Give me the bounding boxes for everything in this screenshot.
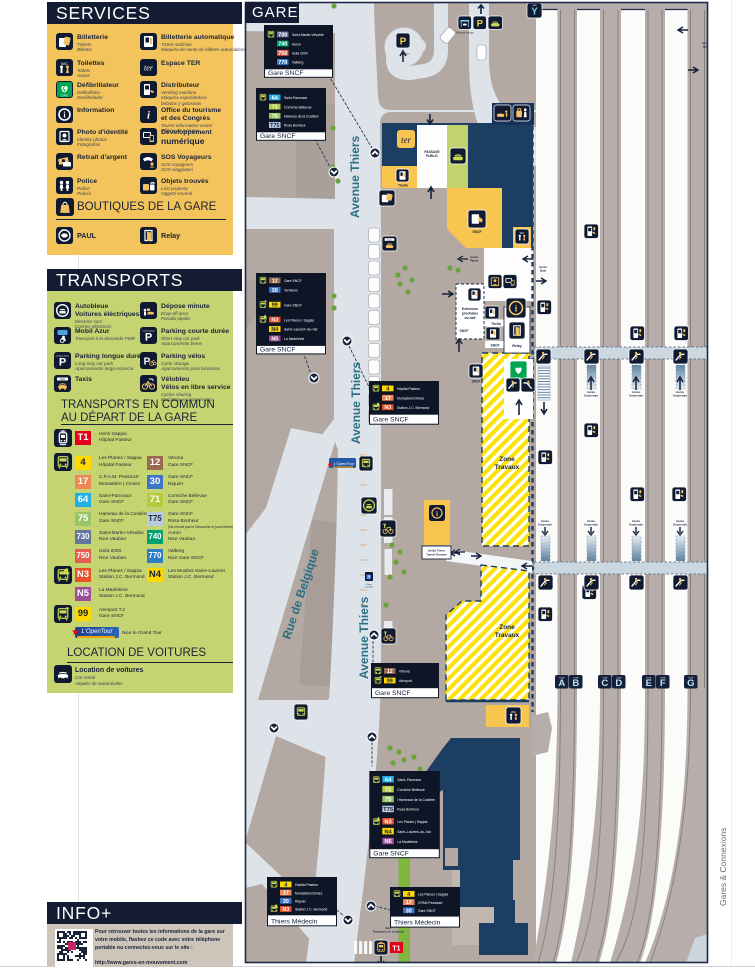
svg-text:La Madeleine: La Madeleine [397,840,417,844]
svg-text:Hôpital Pasteur: Hôpital Pasteur [295,883,319,887]
svg-text:4: 4 [407,892,410,898]
svg-text:Corniche Bellevue: Corniche Bellevue [397,788,425,792]
svg-text:Souterrain: Souterrain [673,394,687,398]
svg-text:Rosa Bonheur: Rosa Bonheur [397,808,420,812]
svg-text:Les Planes | Sappia: Les Planes | Sappia [418,893,448,897]
svg-text:T1: T1 [392,946,400,953]
svg-text:Saint–Laurent–du–Var: Saint–Laurent–du–Var [397,830,432,834]
svg-text:4: 4 [284,882,287,888]
svg-text:Riquier: Riquier [295,900,307,904]
svg-text:Thiers Médecin: Thiers Médecin [394,920,441,927]
svg-text:F: F [660,678,666,689]
svg-text:Thiers Médecin: Thiers Médecin [271,918,318,925]
svg-text:Gares & Connexions: Gares & Connexions [718,828,728,906]
svg-text:Monastère/Cimiez: Monastère/Cimiez [397,397,425,401]
svg-text:30: 30 [283,899,289,905]
svg-text:Gare SNCF: Gare SNCF [375,690,411,697]
svg-text:Station J.C. Bermond: Station J.C. Bermond [295,908,327,912]
svg-text:Quai: Quai [703,45,709,49]
svg-text:T75: T75 [270,123,279,129]
svg-text:Thello: Thello [398,184,408,188]
svg-text:Tunnel Durante: Tunnel Durante [426,553,447,557]
svg-text:N4: N4 [271,327,278,333]
svg-text:730: 730 [278,32,287,38]
svg-text:Gare SNCF: Gare SNCF [373,851,409,858]
svg-text:VOIE: VOIE [616,678,621,680]
svg-text:La Madeleine: La Madeleine [284,337,304,341]
svg-text:i: i [436,510,438,518]
svg-text:VOIE: VOIE [559,678,564,680]
svg-text:B: B [572,678,579,689]
svg-text:12: 12 [387,669,393,675]
svg-text:Souterrain: Souterrain [584,523,598,527]
svg-text:Souterrain: Souterrain [629,523,643,527]
svg-text:99: 99 [387,679,393,685]
svg-text:prochaine: prochaine [462,312,478,316]
svg-text:Souterrain: Souterrain [584,394,598,398]
svg-text:T75: T75 [383,807,394,813]
svg-text:Vitrona: Vitrona [399,670,410,674]
svg-text:Dépose minute: Dépose minute [456,31,474,35]
svg-text:30: 30 [406,908,412,914]
svg-text:64: 64 [272,95,278,101]
svg-text:Avenue Thiers: Avenue Thiers [349,361,363,444]
svg-text:Avenue Thiers: Avenue Thiers [348,135,362,218]
svg-text:Aéroport: Aéroport [399,679,412,683]
svg-text:Hameau de la Costière: Hameau de la Costière [284,115,319,119]
svg-text:Travaux: Travaux [495,464,520,471]
svg-text:Isola 2000: Isola 2000 [292,52,308,56]
svg-text:Hôpital Pasteur: Hôpital Pasteur [397,387,421,391]
svg-text:Souterrain: Souterrain [629,394,643,398]
svg-text:Avenue Thiers: Avenue Thiers [357,596,371,679]
svg-text:Saint-Pancrace: Saint-Pancrace [284,96,307,100]
svg-text:VOIE: VOIE [573,678,578,680]
svg-text:Zone: Zone [499,624,515,631]
svg-text:75: 75 [385,797,392,803]
svg-text:♿: ♿ [366,574,372,580]
svg-text:N3: N3 [384,405,391,411]
svg-text:Gare SNCF: Gare SNCF [260,133,296,140]
svg-text:Station J.C. Bermond: Station J.C. Bermond [397,406,429,410]
svg-text:Extension: Extension [462,307,478,311]
svg-text:L'OpenTour: L'OpenTour [334,461,355,466]
svg-text:Souterrain: Souterrain [538,523,552,527]
svg-text:Zone: Zone [499,456,515,463]
svg-text:du hall: du hall [465,316,476,320]
svg-text:VOIE: VOIE [660,678,665,680]
svg-text:4: 4 [386,386,389,392]
svg-text:N4: N4 [384,829,392,835]
svg-text:750: 750 [278,51,287,57]
svg-text:Relay: Relay [512,344,522,348]
svg-text:99: 99 [272,303,278,309]
svg-text:740: 740 [278,42,287,48]
svg-text:Saint–Laurent–du–Var: Saint–Laurent–du–Var [284,328,319,332]
svg-text:Terminus: Terminus [284,289,298,293]
svg-text:770: 770 [278,60,287,66]
svg-text:C: C [601,678,608,689]
svg-text:17: 17 [406,900,412,906]
svg-text:64: 64 [385,777,392,783]
svg-text:Gare SNCF: Gare SNCF [418,909,436,913]
svg-text:Parvis: Parvis [470,259,479,263]
svg-text:Gare SNCF: Gare SNCF [268,70,304,77]
svg-text:ter: ter [401,135,411,145]
svg-text:Les Planes | Sappia: Les Planes | Sappia [397,820,427,824]
svg-text:Gare SNCF: Gare SNCF [260,346,296,353]
svg-text:G: G [687,678,694,689]
svg-text:Souterrain: Souterrain [673,523,687,527]
svg-text:réservée: réservée [365,586,374,589]
svg-text:★: ★ [327,461,333,469]
svg-text:PUBLIC: PUBLIC [426,154,439,158]
svg-text:E: E [646,678,652,689]
svg-text:SNCF: SNCF [460,329,469,333]
svg-text:Saint-Martin-Vésubie: Saint-Martin-Vésubie [292,33,324,37]
svg-text:Corniche Bellevue: Corniche Bellevue [284,105,312,109]
svg-text:Gare SNCF: Gare SNCF [373,417,409,424]
svg-text:SNCF: SNCF [472,230,481,234]
svg-text:VOIE: VOIE [688,678,693,680]
svg-text:Rosa Bonheur: Rosa Bonheur [284,124,307,128]
svg-text:17: 17 [385,396,391,402]
svg-text:Transports en commun: Transports en commun [373,930,404,934]
svg-text:17: 17 [283,891,289,897]
svg-text:71: 71 [272,105,278,111]
svg-text:CPAM Pessicart: CPAM Pessicart [418,901,442,905]
svg-text:Thello: Thello [491,322,501,326]
svg-text:D: D [615,678,622,689]
svg-text:30: 30 [272,288,278,294]
svg-text:75: 75 [272,114,278,120]
svg-text:N3: N3 [282,907,289,913]
svg-text:Gare SNCF: Gare SNCF [284,303,302,307]
svg-text:N3: N3 [384,819,392,825]
svg-text:N5: N5 [384,839,392,845]
svg-text:Saint–Pancrace: Saint–Pancrace [397,778,421,782]
svg-text:Auron: Auron [292,42,301,46]
svg-text:A: A [558,678,565,689]
svg-text:12: 12 [272,278,278,284]
svg-text:Les Planes / Sappia: Les Planes / Sappia [284,318,314,322]
svg-text:VOIE: VOIE [646,678,651,680]
svg-text:Quai: Quai [540,269,546,273]
svg-text:SNCF: SNCF [491,343,500,347]
svg-text:N5: N5 [271,336,278,342]
svg-text:Monastère/Cimiez: Monastère/Cimiez [295,891,323,895]
svg-text:N3: N3 [271,318,278,324]
svg-text:Valberg: Valberg [292,61,304,65]
svg-text:SNCF: SNCF [472,380,481,384]
svg-text:VOIE: VOIE [602,678,607,680]
svg-text:l'Hameaux de la Costière: l'Hameaux de la Costière [397,798,435,802]
svg-text:71: 71 [385,787,392,793]
svg-text:Travaux: Travaux [495,632,520,639]
svg-text:Gare SNCF: Gare SNCF [284,279,302,283]
